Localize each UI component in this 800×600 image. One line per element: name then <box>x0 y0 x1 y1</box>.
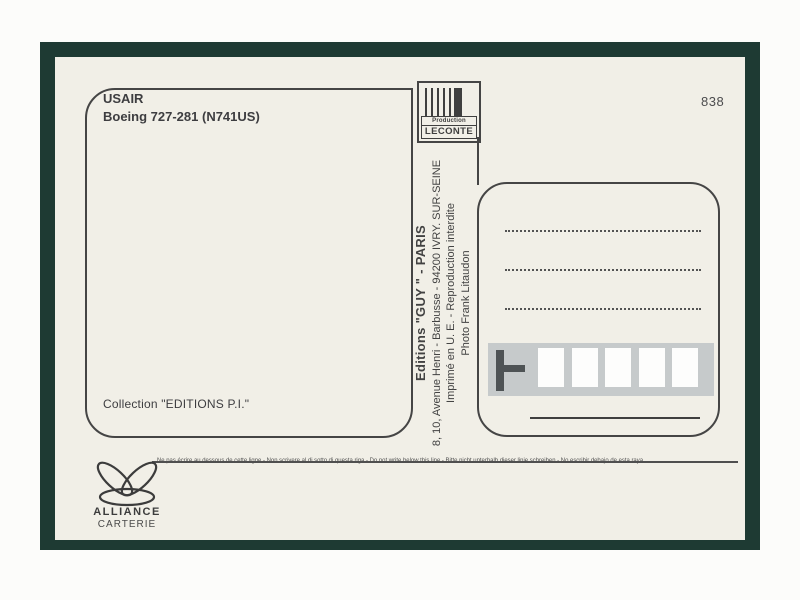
signature-line <box>530 417 700 419</box>
postcard-frame: USAIR Boeing 727-281 (N741US) Collection… <box>40 42 760 550</box>
postal-code-strip <box>488 343 714 396</box>
postal-tick-arm-icon <box>504 365 525 372</box>
airline-caption: USAIR <box>103 90 260 108</box>
address-line <box>505 230 701 232</box>
address-line <box>505 308 701 310</box>
message-area <box>85 88 413 438</box>
photo-caption: USAIR Boeing 727-281 (N741US) <box>103 90 260 125</box>
aircraft-caption: Boeing 727-281 (N741US) <box>103 108 260 126</box>
postal-tick-icon <box>496 350 504 391</box>
postal-code-box <box>572 348 598 387</box>
write-notice: Ne pas écrire au dessous de cette ligne … <box>157 449 739 467</box>
alliance-name: ALLIANCE <box>77 506 177 518</box>
alliance-subtitle: CARTERIE <box>77 519 177 530</box>
address-line <box>505 269 701 271</box>
address-area <box>477 182 720 437</box>
alliance-flower-icon <box>85 461 169 507</box>
postcard-back: USAIR Boeing 727-281 (N741US) Collection… <box>55 57 745 540</box>
postal-code-box <box>639 348 665 387</box>
postal-code-box <box>672 348 698 387</box>
collection-caption: Collection "EDITIONS P.I." <box>103 397 249 411</box>
notice-rule <box>152 461 738 463</box>
postal-code-box <box>605 348 631 387</box>
column-divider-line <box>477 137 479 185</box>
postal-code-box <box>538 348 564 387</box>
publisher-logo: ALLIANCE CARTERIE <box>77 461 177 530</box>
card-number: 838 <box>701 94 724 109</box>
